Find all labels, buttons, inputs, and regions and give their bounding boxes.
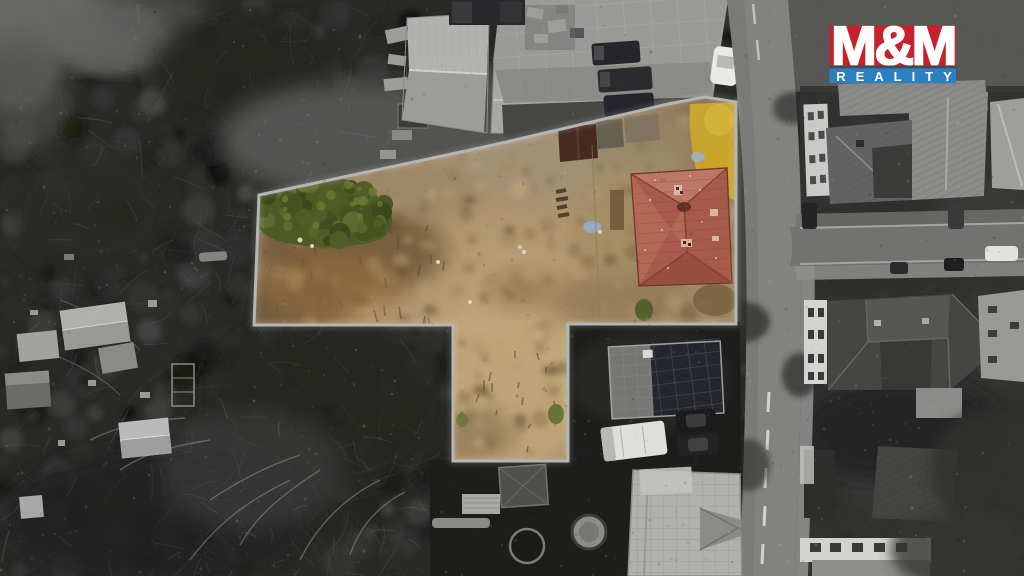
svg-text:REALITY: REALITY [836,69,962,84]
